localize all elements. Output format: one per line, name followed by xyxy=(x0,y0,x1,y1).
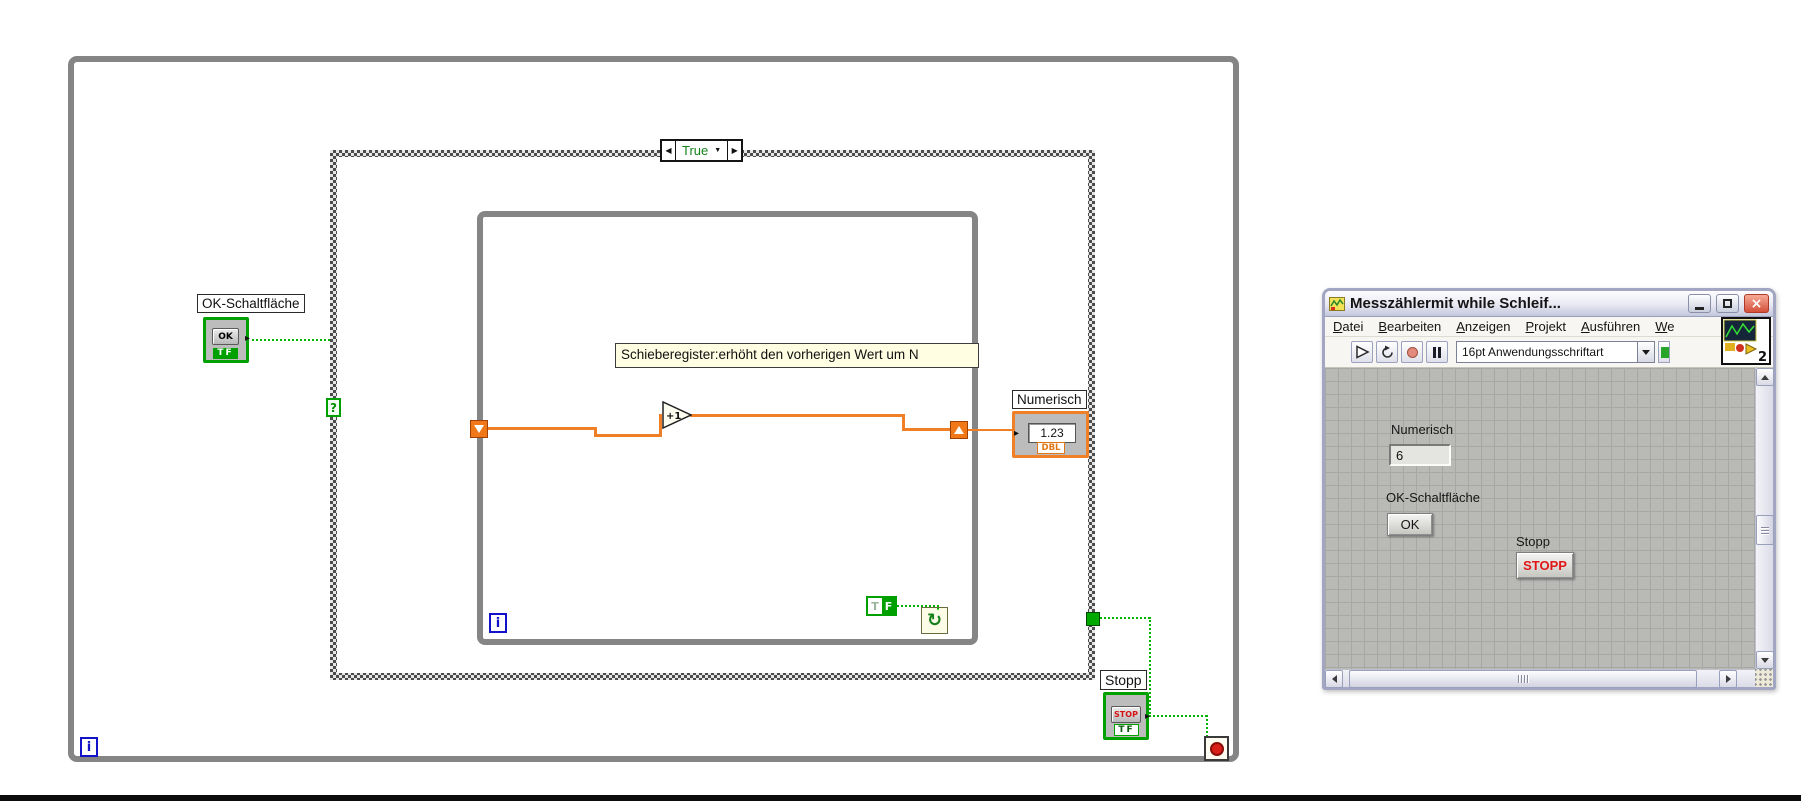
stop-control-terminal[interactable]: STOP ▸ TF xyxy=(1103,692,1149,740)
arrow-up-icon xyxy=(1761,375,1769,380)
vi-icon-badge: 2 xyxy=(1758,350,1767,363)
numeric-indicator-terminal[interactable]: ▸ 1.23 DBL xyxy=(1012,411,1089,458)
front-panel-content: Numerisch 6 OK-Schaltfläche OK Stopp STO… xyxy=(1325,368,1773,687)
stop-glyph: STOP xyxy=(1111,706,1141,723)
font-selector[interactable]: 16pt Anwendungsschriftart xyxy=(1456,341,1655,363)
ok-output-arrow-icon: ▸ xyxy=(245,334,250,344)
scroll-right-button[interactable] xyxy=(1719,670,1737,688)
numeric-input-arrow-icon: ▸ xyxy=(1014,429,1019,439)
menu-bar: Datei Bearbeiten Anzeigen Projekt Ausfüh… xyxy=(1325,317,1773,337)
false-boolean-constant[interactable]: T F xyxy=(866,596,897,616)
stop-if-true-icon xyxy=(1210,742,1224,756)
chevron-down-icon xyxy=(1642,350,1650,355)
minimize-icon xyxy=(1695,307,1704,310)
false-constant-f[interactable]: F xyxy=(882,598,895,614)
ok-tf-type: TF xyxy=(213,348,238,359)
shift-register-down-icon xyxy=(474,425,484,433)
maximize-button[interactable] xyxy=(1716,294,1739,313)
minimize-button[interactable] xyxy=(1688,294,1711,313)
pause-button[interactable] xyxy=(1426,341,1448,363)
shift-register-left[interactable] xyxy=(470,420,488,438)
menu-werkzeuge[interactable]: We xyxy=(1655,319,1674,334)
free-comment-label[interactable]: Schieberegister:erhöht den vorherigen We… xyxy=(615,343,979,368)
menu-bearbeiten[interactable]: Bearbeiten xyxy=(1378,319,1441,334)
horizontal-scrollbar[interactable] xyxy=(1325,669,1755,687)
run-button[interactable] xyxy=(1351,341,1373,363)
close-icon: × xyxy=(1751,296,1763,312)
shift-register-up-icon xyxy=(954,426,964,434)
arrow-right-icon xyxy=(1726,675,1731,683)
stop-output-arrow-icon: ▸ xyxy=(1145,712,1150,722)
panel-numeric-label: Numerisch xyxy=(1391,422,1453,437)
toolbar: 16pt Anwendungsschriftart xyxy=(1325,337,1773,368)
scroll-down-button[interactable] xyxy=(1756,651,1774,669)
false-constant-t: T xyxy=(868,598,882,614)
boolean-wire-segment[interactable] xyxy=(1206,715,1208,737)
align-objects-button-partial[interactable] xyxy=(1658,341,1670,363)
case-output-tunnel[interactable] xyxy=(1086,612,1100,626)
outer-iteration-terminal[interactable]: i xyxy=(80,737,98,757)
boolean-wire-segment[interactable] xyxy=(1149,617,1151,717)
maximize-icon xyxy=(1723,299,1732,308)
boolean-wire-segment[interactable] xyxy=(1100,617,1150,619)
case-dropdown-icon[interactable]: ▼ xyxy=(714,147,721,154)
numeric-wire-segment[interactable] xyxy=(594,434,662,437)
numeric-wire-segment[interactable] xyxy=(690,414,905,417)
close-button[interactable]: × xyxy=(1744,294,1769,313)
panel-stop-label: Stopp xyxy=(1516,534,1550,549)
case-selector-value: True xyxy=(682,143,708,158)
menu-anzeigen[interactable]: Anzeigen xyxy=(1456,319,1510,334)
increment-node-text: +1 xyxy=(666,411,681,422)
horizontal-scroll-thumb[interactable] xyxy=(1349,670,1697,688)
window-title: Messzählermit while Schleif... xyxy=(1350,295,1683,312)
increment-node[interactable]: +1 xyxy=(662,401,692,429)
font-selector-value: 16pt Anwendungsschriftart xyxy=(1456,341,1638,363)
ok-control-label[interactable]: OK-Schaltfläche xyxy=(197,294,305,313)
stop-tf-type: TF xyxy=(1114,724,1139,736)
abort-button[interactable] xyxy=(1401,341,1423,363)
case-selector-terminal[interactable]: ? xyxy=(326,398,341,417)
run-arrow-icon xyxy=(1355,345,1370,359)
ok-control-terminal[interactable]: OK ▸ TF xyxy=(203,317,249,363)
continue-if-true-icon: ↻ xyxy=(927,610,942,631)
front-panel-window: Messzählermit while Schleif... × Datei B… xyxy=(1322,288,1776,690)
align-icon xyxy=(1661,347,1670,358)
run-continuously-button[interactable] xyxy=(1376,341,1398,363)
menu-datei[interactable]: Datei xyxy=(1333,319,1363,334)
boolean-wire-segment[interactable] xyxy=(252,339,330,341)
inner-loop-condition-terminal[interactable]: ↻ xyxy=(921,607,948,634)
boolean-wire-segment[interactable] xyxy=(1149,715,1207,717)
numeric-indicator-field[interactable]: 6 xyxy=(1389,444,1451,466)
menu-ausfuehren[interactable]: Ausführen xyxy=(1581,319,1640,334)
abort-icon xyxy=(1407,347,1418,358)
stop-control-label[interactable]: Stopp xyxy=(1100,670,1147,690)
menu-projekt[interactable]: Projekt xyxy=(1525,319,1565,334)
shift-register-right[interactable] xyxy=(950,421,968,439)
title-bar[interactable]: Messzählermit while Schleif... × xyxy=(1325,291,1773,317)
case-prev-icon[interactable]: ◀ xyxy=(662,141,675,160)
case-selector-label[interactable]: ◀ True ▼ ▶ xyxy=(660,139,743,162)
font-dropdown-button[interactable] xyxy=(1638,341,1655,363)
scroll-up-button[interactable] xyxy=(1756,368,1774,386)
stop-button[interactable]: STOPP xyxy=(1516,552,1574,579)
window-resize-grip[interactable] xyxy=(1755,669,1773,687)
vi-titlebar-icon xyxy=(1329,296,1345,312)
numeric-indicator-label[interactable]: Numerisch xyxy=(1012,390,1087,409)
arrow-down-icon xyxy=(1761,658,1769,663)
run-continuously-icon xyxy=(1380,345,1395,360)
vi-icon-pane[interactable]: 2 xyxy=(1721,317,1771,365)
numeric-wire-segment[interactable] xyxy=(487,427,597,430)
pause-icon xyxy=(1433,347,1436,358)
panel-ok-label: OK-Schaltfläche xyxy=(1386,490,1480,505)
ok-glyph: OK xyxy=(212,328,239,345)
inner-iteration-terminal[interactable]: i xyxy=(489,613,507,633)
numeric-wire-segment[interactable] xyxy=(902,428,954,431)
vertical-scroll-thumb[interactable] xyxy=(1756,515,1774,545)
screen-bottom-edge xyxy=(0,795,1801,801)
ok-button[interactable]: OK xyxy=(1387,513,1433,536)
numeric-display-glyph: 1.23 xyxy=(1028,423,1076,443)
outer-loop-condition-terminal[interactable] xyxy=(1204,736,1229,761)
arrow-left-icon xyxy=(1332,675,1337,683)
boolean-wire-segment[interactable] xyxy=(937,605,939,610)
boolean-wire-segment[interactable] xyxy=(897,605,939,607)
numeric-dbl-type: DBL xyxy=(1037,442,1065,454)
labview-screen: ◀ True ▼ ▶ Schieberegister:erhöht den vo… xyxy=(0,0,1801,801)
vertical-scrollbar[interactable] xyxy=(1755,368,1773,669)
scroll-left-button[interactable] xyxy=(1325,670,1343,688)
panel-grid[interactable]: Numerisch 6 OK-Schaltfläche OK Stopp STO… xyxy=(1325,368,1755,669)
case-next-icon[interactable]: ▶ xyxy=(728,141,741,160)
numeric-wire-segment[interactable] xyxy=(968,429,1016,431)
